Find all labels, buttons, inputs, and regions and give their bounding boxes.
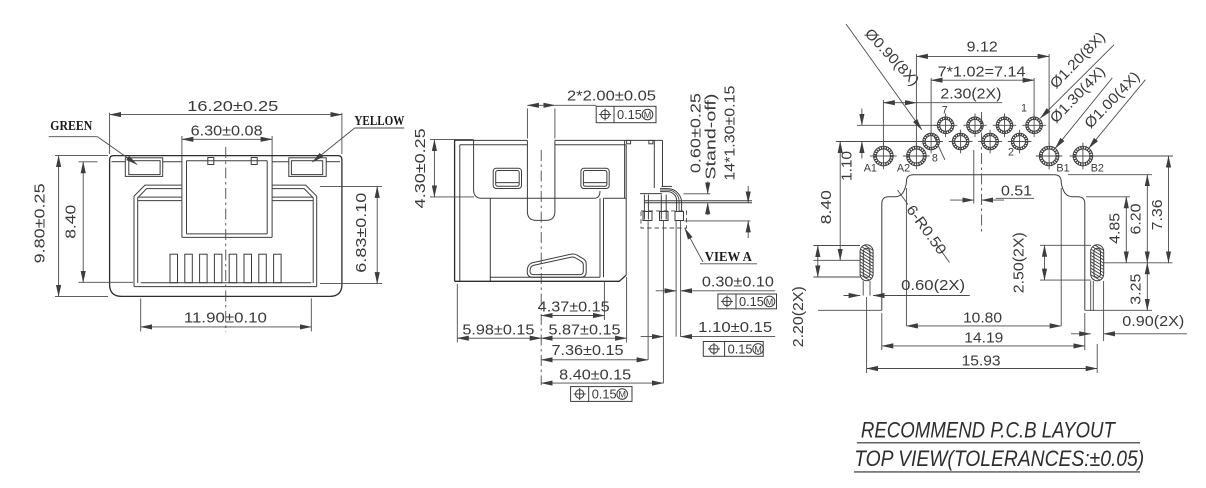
svg-text:0.90(2X): 0.90(2X) — [1122, 314, 1184, 330]
svg-text:1.10: 1.10 — [839, 151, 855, 181]
svg-text:RECOMMEND P.C.B LAYOUT: RECOMMEND P.C.B LAYOUT — [861, 417, 1117, 442]
svg-text:15.93: 15.93 — [962, 353, 1001, 369]
svg-text:11.90±0.10: 11.90±0.10 — [184, 310, 267, 326]
svg-text:0.15: 0.15 — [592, 387, 617, 402]
svg-text:VIEW A: VIEW A — [705, 249, 752, 264]
svg-text:4.30±0.25: 4.30±0.25 — [413, 128, 429, 208]
svg-text:2.50(2X): 2.50(2X) — [1012, 232, 1028, 293]
svg-text:9.80±0.25: 9.80±0.25 — [32, 183, 48, 263]
svg-text:TOP VIEW(TOLERANCES:±0.05): TOP VIEW(TOLERANCES:±0.05) — [854, 446, 1144, 471]
svg-text:0.15: 0.15 — [728, 342, 753, 357]
svg-text:6.83±0.10: 6.83±0.10 — [354, 193, 370, 273]
svg-text:0.60±0.25: 0.60±0.25 — [688, 93, 704, 173]
svg-text:0.60(2X): 0.60(2X) — [901, 278, 965, 294]
svg-text:6.20: 6.20 — [1129, 204, 1145, 235]
svg-text:5.98±0.15: 5.98±0.15 — [462, 322, 534, 338]
svg-text:8.40: 8.40 — [64, 205, 80, 239]
svg-text:3.25: 3.25 — [1129, 274, 1145, 305]
svg-text:4.37±0.15: 4.37±0.15 — [538, 299, 610, 315]
svg-text:2.20(2X): 2.20(2X) — [791, 286, 807, 347]
svg-text:7.36: 7.36 — [1150, 199, 1166, 230]
svg-text:8.40±0.15: 8.40±0.15 — [559, 368, 631, 384]
svg-text:0.51: 0.51 — [1001, 184, 1032, 200]
svg-text:16.20±0.25: 16.20±0.25 — [187, 99, 278, 115]
svg-text:0.15: 0.15 — [739, 294, 764, 309]
svg-text:8.40: 8.40 — [819, 190, 835, 224]
svg-text:1.10±0.15: 1.10±0.15 — [698, 320, 772, 336]
svg-text:0.15: 0.15 — [617, 107, 642, 122]
svg-text:2: 2 — [1008, 147, 1014, 159]
svg-text:0.30±0.10: 0.30±0.10 — [702, 275, 774, 291]
svg-text:7: 7 — [942, 105, 948, 117]
svg-text:8: 8 — [932, 152, 938, 164]
svg-text:A2: A2 — [897, 163, 910, 175]
svg-text:9.12: 9.12 — [967, 39, 998, 55]
svg-text:GREEN: GREEN — [50, 118, 92, 133]
svg-text:5.87±0.15: 5.87±0.15 — [549, 322, 621, 338]
svg-text:1: 1 — [1021, 102, 1027, 114]
svg-text:2.30(2X): 2.30(2X) — [940, 86, 1001, 102]
svg-text:Stand-off): Stand-off) — [704, 94, 720, 180]
svg-text:6.30±0.08: 6.30±0.08 — [191, 123, 263, 139]
svg-text:B1: B1 — [1056, 162, 1069, 174]
svg-text:14.19: 14.19 — [964, 331, 1003, 347]
svg-text:A1: A1 — [864, 163, 877, 175]
svg-text:2*2.00±0.05: 2*2.00±0.05 — [567, 89, 656, 105]
svg-text:7.36±0.15: 7.36±0.15 — [552, 343, 624, 359]
svg-text:B2: B2 — [1091, 162, 1104, 174]
svg-text:YELLOW: YELLOW — [354, 113, 404, 128]
svg-text:4.85: 4.85 — [1107, 213, 1123, 244]
svg-text:10.80: 10.80 — [963, 311, 1002, 327]
svg-text:7*1.02=7.14: 7*1.02=7.14 — [938, 65, 1026, 81]
svg-text:14*1.30±0.15: 14*1.30±0.15 — [723, 86, 739, 181]
